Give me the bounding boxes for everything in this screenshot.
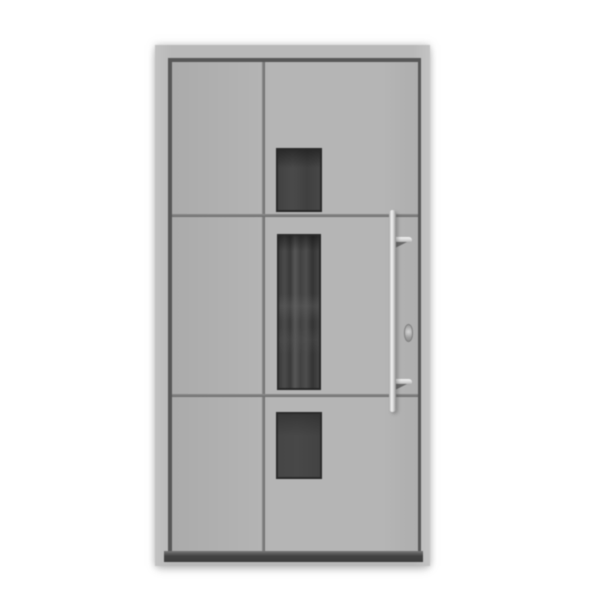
lock-cylinder: [404, 324, 413, 342]
vertical-groove: [262, 62, 265, 551]
glass-panel-middle: [277, 234, 321, 390]
door-threshold: [164, 551, 423, 562]
horizontal-groove-bottom: [172, 394, 418, 397]
horizontal-groove-top: [172, 214, 418, 217]
glass-panel-bottom: [276, 412, 322, 479]
glass-panel-top: [276, 148, 322, 212]
handle-bar: [389, 210, 396, 412]
door-leaf: [172, 62, 418, 551]
product-photo-door: [0, 0, 600, 600]
door-assembly: [155, 45, 430, 566]
